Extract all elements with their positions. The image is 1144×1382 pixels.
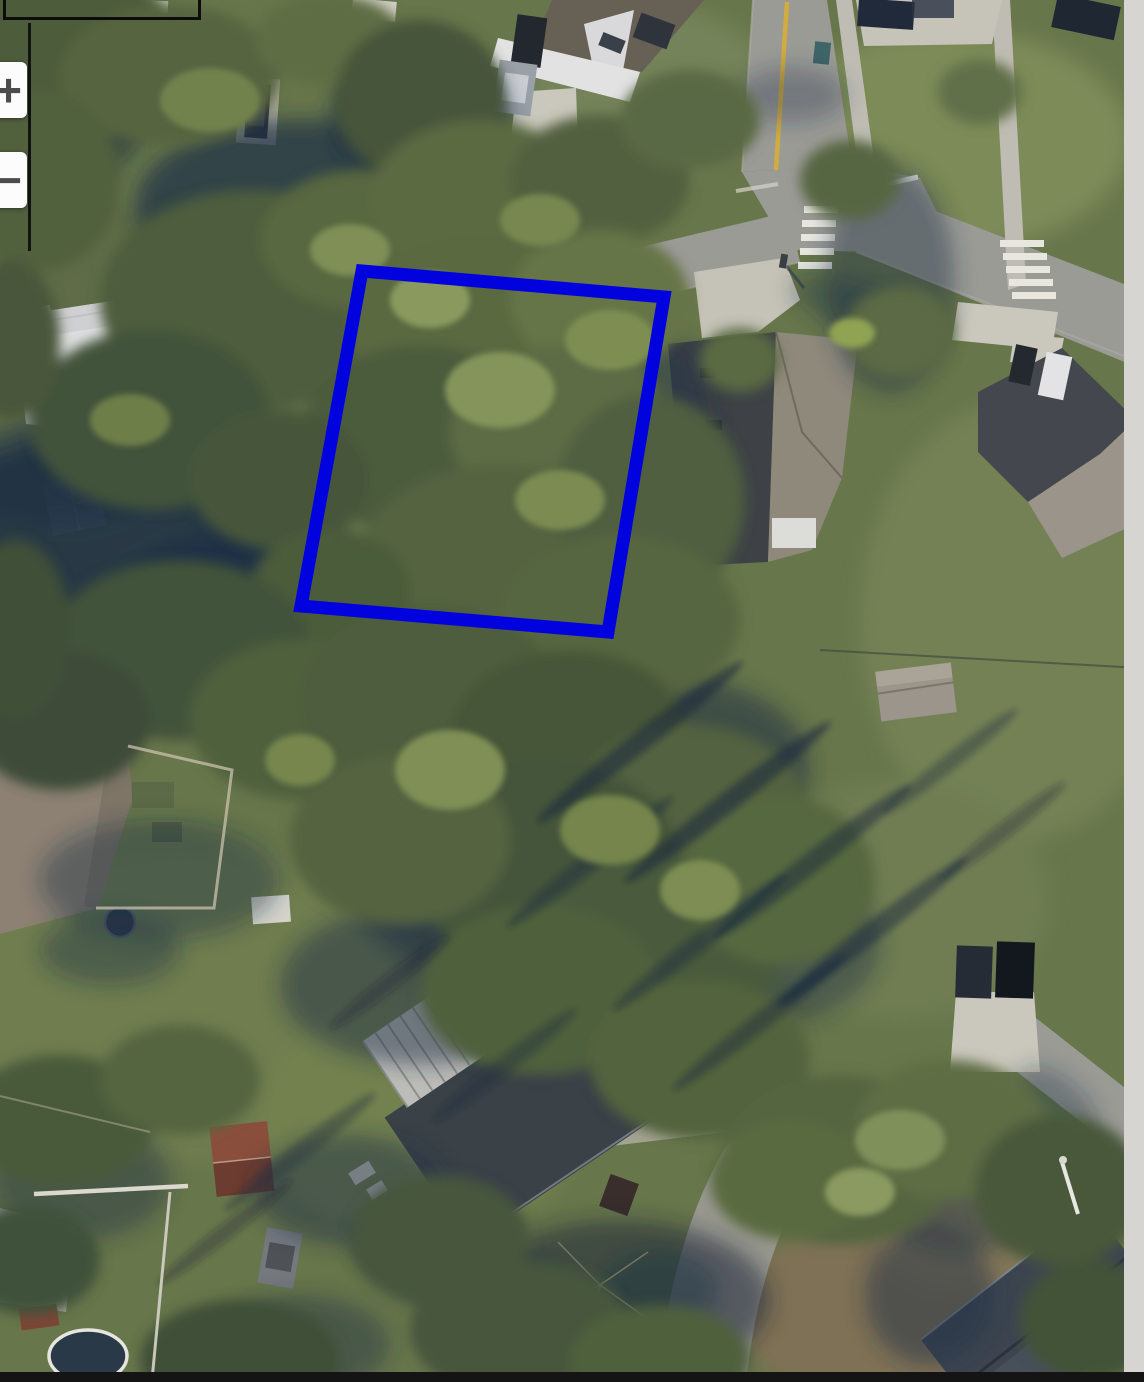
map-view: + − bbox=[0, 0, 1144, 1382]
aerial-imagery[interactable] bbox=[0, 0, 1144, 1382]
shed-right bbox=[875, 663, 957, 722]
annotation-rectangle bbox=[3, 0, 201, 20]
right-gutter bbox=[1124, 0, 1144, 1374]
annotation-line bbox=[28, 23, 31, 251]
zoom-out-button[interactable]: − bbox=[0, 152, 27, 208]
zoom-in-button[interactable]: + bbox=[0, 62, 27, 118]
bottom-bar bbox=[0, 1372, 1144, 1382]
